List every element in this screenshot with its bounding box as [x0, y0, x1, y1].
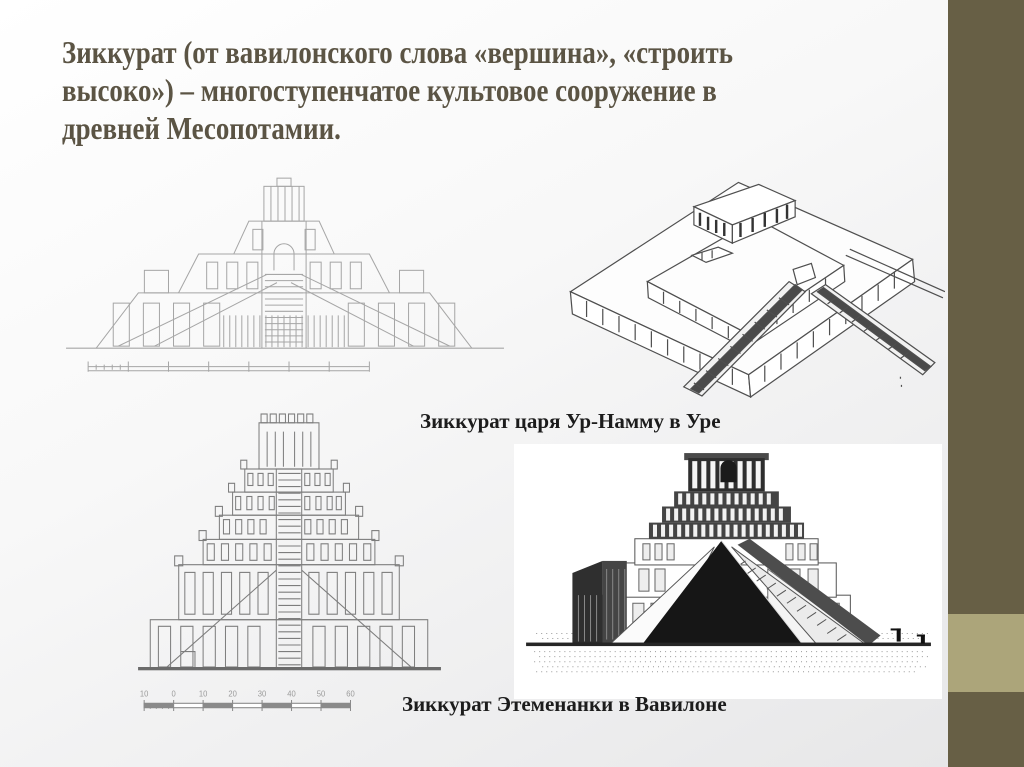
scale-label-0: 10: [140, 689, 149, 698]
title-line-3: древней Месопотамии.: [62, 109, 868, 147]
etemenanki-elevation-line-art: 10 0 10 20 30 40 50 60: [134, 392, 444, 722]
scale-label-6: 50: [317, 689, 326, 698]
scale-label-4: 30: [258, 689, 267, 698]
scale-label-5: 40: [287, 689, 296, 698]
title-line-1: Зиккурат (от вавилонского слова «вершина…: [62, 33, 868, 71]
title-line-2: высоко») – многоступенчатое культовое со…: [62, 71, 868, 109]
figure-etemenanki-perspective-drawing: [514, 444, 942, 699]
scale-label-3: 20: [228, 689, 237, 698]
caption-ur-ziggurat: Зиккурат царя Ур-Намму в Уре: [420, 409, 721, 434]
scale-label-2: 10: [199, 689, 208, 698]
etemenanki-perspective-art: [514, 444, 942, 699]
scale-label-7: 60: [346, 689, 355, 698]
accent-bar-light-band: [948, 614, 1024, 692]
figure-etemenanki-elevation-drawing: 10 0 10 20 30 40 50 60: [134, 392, 444, 722]
figure-ur-elevation-drawing: [58, 172, 510, 382]
ur-elevation-line-art: [58, 172, 510, 382]
accent-bar: [948, 0, 1024, 767]
figure-ur-axonometric-drawing: [540, 150, 945, 398]
slide-title: Зиккурат (от вавилонского слова «вершина…: [62, 33, 868, 147]
caption-etemenanki-ziggurat: Зиккурат Этеменанки в Вавилоне: [402, 692, 727, 717]
presentation-slide: Зиккурат (от вавилонского слова «вершина…: [0, 0, 1024, 767]
scale-label-1: 0: [172, 689, 177, 698]
ur-axonometric-line-art: [540, 150, 945, 398]
